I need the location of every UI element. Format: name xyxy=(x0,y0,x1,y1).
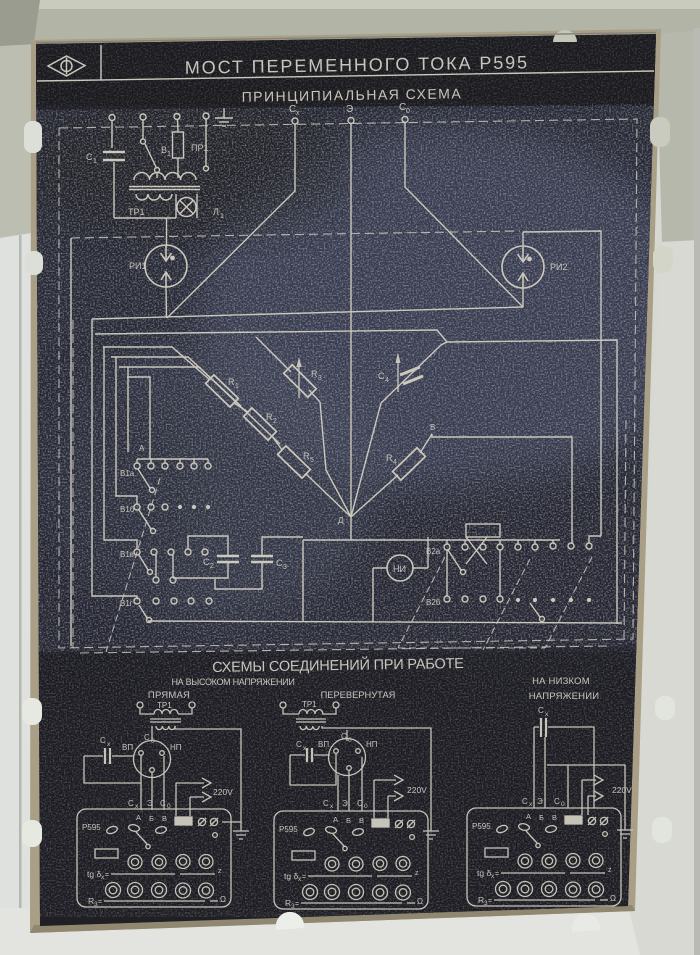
svg-text:0: 0 xyxy=(348,737,352,744)
svg-text:B1в: B1в xyxy=(120,550,134,559)
svg-text:C: C xyxy=(100,736,106,745)
svg-text:ПР1: ПР1 xyxy=(191,143,208,153)
svg-text:Э: Э xyxy=(342,799,348,808)
svg-text:ПРЯМАЯ: ПРЯМАЯ xyxy=(148,690,190,701)
svg-text:R: R xyxy=(311,369,318,379)
svg-text:НИ: НИ xyxy=(393,564,406,574)
svg-text:3: 3 xyxy=(283,564,287,571)
svg-text:ТР1: ТР1 xyxy=(302,700,317,709)
svg-text:B: B xyxy=(430,423,435,432)
svg-text:РИ2: РИ2 xyxy=(550,262,567,272)
svg-text:220V: 220V xyxy=(407,785,427,795)
svg-text:0: 0 xyxy=(406,108,410,115)
svg-text:C: C xyxy=(86,152,93,162)
svg-text:C: C xyxy=(276,558,283,568)
svg-text:ПЕРЕВЕРНУТАЯ: ПЕРЕВЕРНУТАЯ xyxy=(321,690,396,700)
svg-text:R: R xyxy=(228,377,235,387)
svg-text:1: 1 xyxy=(220,213,224,220)
svg-text:ВП: ВП xyxy=(318,740,329,749)
svg-text:220V: 220V xyxy=(612,785,632,795)
svg-text:220V: 220V xyxy=(213,787,233,797)
svg-text:0: 0 xyxy=(364,803,368,810)
svg-text:C: C xyxy=(128,799,134,808)
svg-text:Э: Э xyxy=(346,104,353,115)
svg-text:Э: Э xyxy=(537,797,543,806)
svg-text:R: R xyxy=(386,453,393,463)
svg-text:2: 2 xyxy=(210,563,214,570)
svg-text:B1б: B1б xyxy=(120,505,135,514)
svg-text:3: 3 xyxy=(318,375,322,382)
svg-text:C: C xyxy=(341,732,347,741)
svg-text:Д: Д xyxy=(338,516,344,525)
svg-text:2: 2 xyxy=(273,418,277,425)
svg-text:C: C xyxy=(522,797,528,806)
svg-text:B1г: B1г xyxy=(120,599,133,608)
svg-text:НА НИЗКОМ: НА НИЗКОМ xyxy=(532,676,590,687)
svg-text:A: A xyxy=(139,444,145,453)
svg-text:4: 4 xyxy=(393,459,397,466)
svg-text:B2б: B2б xyxy=(426,598,441,607)
svg-text:5: 5 xyxy=(310,457,314,464)
svg-text:ТР1: ТР1 xyxy=(157,701,172,710)
svg-text:НП: НП xyxy=(366,740,378,749)
svg-text:1: 1 xyxy=(235,383,239,390)
svg-text:0: 0 xyxy=(151,738,155,745)
svg-text:C: C xyxy=(357,799,363,808)
svg-text:1: 1 xyxy=(93,158,97,165)
svg-text:C: C xyxy=(378,371,385,381)
svg-text:C: C xyxy=(323,799,329,808)
svg-text:C: C xyxy=(160,799,166,808)
svg-text:НА ВЫСОКОМ НАПРЯЖЕНИИ: НА ВЫСОКОМ НАПРЯЖЕНИИ xyxy=(171,677,294,687)
svg-text:C: C xyxy=(554,797,560,806)
svg-text:4: 4 xyxy=(385,377,389,384)
svg-text:ТР1: ТР1 xyxy=(128,207,145,217)
svg-text:C: C xyxy=(144,733,150,742)
svg-text:ВП: ВП xyxy=(122,743,133,752)
svg-text:B1а: B1а xyxy=(120,469,135,478)
svg-text:НАПРЯЖЕНИИ: НАПРЯЖЕНИИ xyxy=(529,691,600,702)
svg-text:Э: Э xyxy=(147,799,153,808)
svg-text:C: C xyxy=(203,557,210,567)
svg-text:НП: НП xyxy=(170,743,182,752)
svg-text:РИ1: РИ1 xyxy=(129,261,146,271)
svg-text:C: C xyxy=(538,706,544,715)
svg-text:C: C xyxy=(296,740,302,749)
svg-text:0: 0 xyxy=(561,801,565,808)
svg-text:Л: Л xyxy=(213,207,219,217)
svg-text:R: R xyxy=(266,412,273,422)
svg-text:B2а: B2а xyxy=(426,547,441,556)
svg-text:1: 1 xyxy=(167,151,171,158)
svg-text:x: x xyxy=(296,110,300,117)
svg-text:R: R xyxy=(303,451,310,461)
